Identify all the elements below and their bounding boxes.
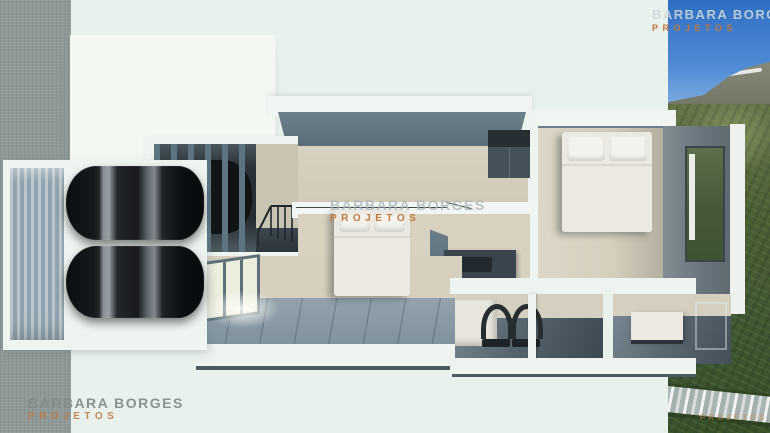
wardrobe [488, 130, 530, 178]
garage-door [10, 168, 64, 340]
watermark-center: BARBARA BORGES PROJETOS [330, 197, 486, 225]
duvet-fold [334, 236, 410, 238]
bottom-wall-shadow-left [196, 366, 464, 370]
bottom-wall-shadow-right [452, 374, 696, 377]
watermark-top-right: BARBARA BORGES PROJETOS [652, 8, 770, 33]
double-bed-right [562, 132, 652, 232]
watermark-brand-text: BARBARA BORGES [28, 395, 184, 411]
car-bottom [66, 246, 204, 318]
bottomright-top-wall [450, 278, 696, 294]
watermark-brand-text: BARBARA BORGES [652, 8, 770, 23]
window-light-spill [206, 290, 280, 328]
stair-hall [256, 144, 298, 252]
small-room [613, 294, 731, 364]
watermark-sub-text: PROJETOS [700, 413, 767, 422]
stair-railing [256, 144, 298, 252]
watermark-sub-text: PROJETOS [652, 23, 770, 33]
bathroom [455, 294, 603, 358]
watermark-sub-text: PROJETOS [28, 411, 184, 423]
watermark-brand-text: BARBARA BORGES [330, 197, 486, 213]
duvet-fold [562, 164, 652, 166]
small-room-counter [631, 312, 683, 340]
faucet [481, 304, 513, 339]
watermark-bottom-left: BARBARA BORGES PROJETOS [28, 395, 184, 423]
door-outline [695, 302, 727, 350]
faucet [511, 304, 543, 339]
right-outer-wall-top [730, 124, 745, 314]
room-gap-wall [603, 290, 613, 364]
floorplan-render-canvas: BARBARA BORGES PROJETOS BARBARA BORGES P… [0, 0, 770, 433]
bathroom-divider-wall [528, 294, 536, 358]
right-window-frame [689, 154, 695, 240]
bottom-exterior-wall-left [194, 344, 464, 368]
car-top [66, 166, 204, 240]
watermark-sub-text: PROJETOS [330, 213, 486, 225]
pillow [567, 137, 605, 161]
watermark-bottom-right: PROJETOS [700, 413, 767, 422]
pillow [609, 137, 647, 161]
